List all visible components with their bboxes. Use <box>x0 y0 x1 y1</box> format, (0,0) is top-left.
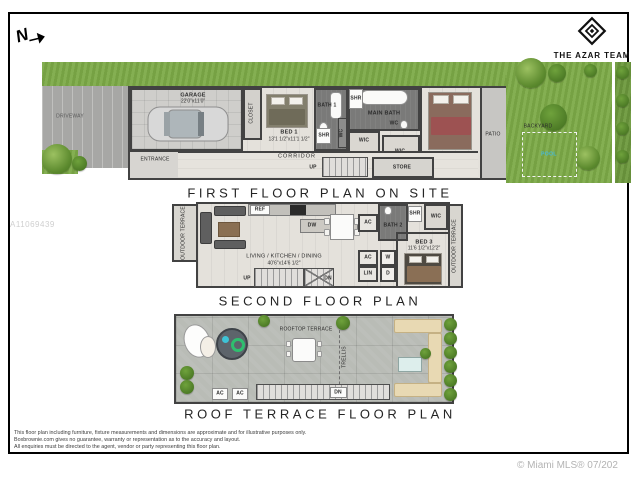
closet-label: CLOSET <box>250 102 255 123</box>
backyard-tree <box>576 146 600 170</box>
roof-plant <box>258 315 270 327</box>
roof-hedge <box>444 360 457 373</box>
garage-dims: 22'0"x11'0" <box>181 100 205 105</box>
first-floor-title: FIRST FLOOR PLAN ON SITE <box>187 186 452 201</box>
main-bed-bed <box>428 92 472 150</box>
bed3-wall-left <box>396 232 398 288</box>
second-floor-up-label: UP <box>243 277 250 282</box>
ac1-label: AC <box>364 221 372 226</box>
car-icon <box>146 104 230 144</box>
roof-chair <box>317 351 322 357</box>
roof-title: ROOF TERRACE FLOOR PLAN <box>184 407 456 422</box>
roof-chair <box>286 351 291 357</box>
coffee-table <box>218 222 240 237</box>
rooftop-terrace-label: ROOFTOP TERRACE <box>280 328 333 333</box>
backyard-tree <box>548 64 566 82</box>
hedge-bush <box>616 122 629 135</box>
hot-tub <box>216 328 248 360</box>
disclaimer: This floor plan including furniture, fix… <box>14 430 434 451</box>
patio-wall <box>480 88 482 180</box>
lin-label: LIN <box>364 272 373 277</box>
disclaimer-line: Boxbrownie.com gives no guarantee, warra… <box>14 437 434 444</box>
main-bath-tub <box>360 90 408 105</box>
main-bath-toilet <box>400 120 408 129</box>
washer-label: W <box>386 256 391 261</box>
roof-ac2-label: AC <box>236 392 244 397</box>
roof-sofa <box>394 319 442 333</box>
hedge-bush <box>616 66 629 79</box>
roof-chair <box>317 341 322 347</box>
backyard-label: BACKYARD <box>524 125 553 130</box>
entrance-area <box>130 150 178 178</box>
first-floor-up-label: UP <box>309 166 316 171</box>
main-bath-label: MAIN BATH <box>368 111 400 117</box>
roof-sofa <box>394 383 442 397</box>
front-bush <box>72 156 87 171</box>
azar-logo-icon <box>577 16 607 46</box>
mls-watermark: A11069439 <box>10 220 55 229</box>
north-arrow: N <box>16 26 46 46</box>
roof-coffee-table <box>398 357 422 372</box>
floor-plan-sheet: N THE AZAR TEAM BACKYARD POOL DRIVEWAY G… <box>0 0 640 480</box>
living-dims: 40'6"x14'6 1/2" <box>268 262 301 267</box>
living-label: LIVING / KITCHEN / DINING <box>246 254 322 260</box>
bath2-toilet <box>384 206 392 215</box>
ref-label: REF <box>255 208 266 213</box>
ac2-label: AC <box>364 256 372 261</box>
main-bath-wc-label: WC <box>390 122 399 127</box>
front-grass-strip <box>42 62 506 86</box>
entrance-label: ENTRANCE <box>140 158 169 163</box>
backyard-bush <box>584 64 597 77</box>
pool-label: POOL <box>541 153 557 158</box>
backyard-tree <box>516 58 546 88</box>
lounge-pod <box>200 336 216 358</box>
disclaimer-line: All enquiries must be directed to the ag… <box>14 444 434 451</box>
bath1-shr-label: SHR <box>318 134 329 139</box>
roof-hedge <box>444 374 457 387</box>
bath2-label: BATH 2 <box>384 224 403 229</box>
hedge-bush <box>616 150 629 163</box>
main-bath-shr-label: SHR <box>350 97 361 102</box>
bed1-label: BED 1 <box>280 130 297 136</box>
dining-chair <box>324 218 330 225</box>
bed3-wall-top <box>396 232 450 234</box>
outdoor-terrace-right-label: OUTDOOR TERRACE <box>453 219 458 273</box>
bath1-label: BATH 1 <box>318 104 337 109</box>
roof-dining-table <box>292 338 316 362</box>
roof-plant <box>336 316 350 330</box>
roof-hedge <box>444 388 457 401</box>
sofa <box>214 240 246 249</box>
roof-planter <box>180 380 194 394</box>
second-floor-title: SECOND FLOOR PLAN <box>219 294 422 309</box>
sofa <box>200 212 212 244</box>
first-floor-stairs <box>322 157 368 177</box>
dining-table <box>330 214 354 240</box>
roof-hedge <box>444 346 457 359</box>
hedge-bush <box>616 94 629 107</box>
store-label: STORE <box>393 166 411 171</box>
roof-planter <box>180 366 194 380</box>
bath1-wc-label: WC <box>340 129 345 138</box>
roof-chair <box>286 341 291 347</box>
sofa <box>214 206 246 216</box>
brand-logo: THE AZAR TEAM <box>546 16 638 60</box>
bed1-bed <box>266 94 308 128</box>
patio-label: PATIO <box>485 133 500 138</box>
roof-hedge <box>444 318 457 331</box>
roof-plant <box>420 348 431 359</box>
roof-stairs <box>256 384 390 400</box>
brand-name: THE AZAR TEAM <box>546 51 638 60</box>
copyright: © Miami MLS® 07/202 <box>517 460 618 471</box>
bath2-shr-label: SHR <box>409 212 420 217</box>
second-floor-dn-label: DN <box>324 277 332 282</box>
driveway-label: DRIVEWAY <box>56 115 84 120</box>
bed3-dims: 11'6 1/2"x12'2" <box>408 247 441 252</box>
corridor-label: CORRIDOR <box>278 154 316 160</box>
dining-chair <box>324 229 330 236</box>
outdoor-terrace-left-label: OUTDOOR TERRACE <box>182 206 187 260</box>
roof-sofa <box>428 333 442 383</box>
roof-dn-label: DN <box>334 391 342 396</box>
second-floor-stairs-up <box>254 268 304 287</box>
bed3-wic-label: WIC <box>431 215 441 220</box>
stove <box>290 205 306 215</box>
disclaimer-line: This floor plan including furniture, fix… <box>14 430 434 437</box>
roof-hedge <box>444 332 457 345</box>
dw-label: DW <box>308 224 317 229</box>
bed3-bed <box>404 253 442 285</box>
dryer-label: D <box>386 272 390 277</box>
trellis-label: TRELLIS <box>343 346 348 368</box>
bed1-dims: 13'1 1/2"x11'1 1/2" <box>269 138 310 143</box>
roof-ac1-label: AC <box>216 392 224 397</box>
wic1-label: WIC <box>359 139 369 144</box>
front-tree <box>42 144 72 174</box>
